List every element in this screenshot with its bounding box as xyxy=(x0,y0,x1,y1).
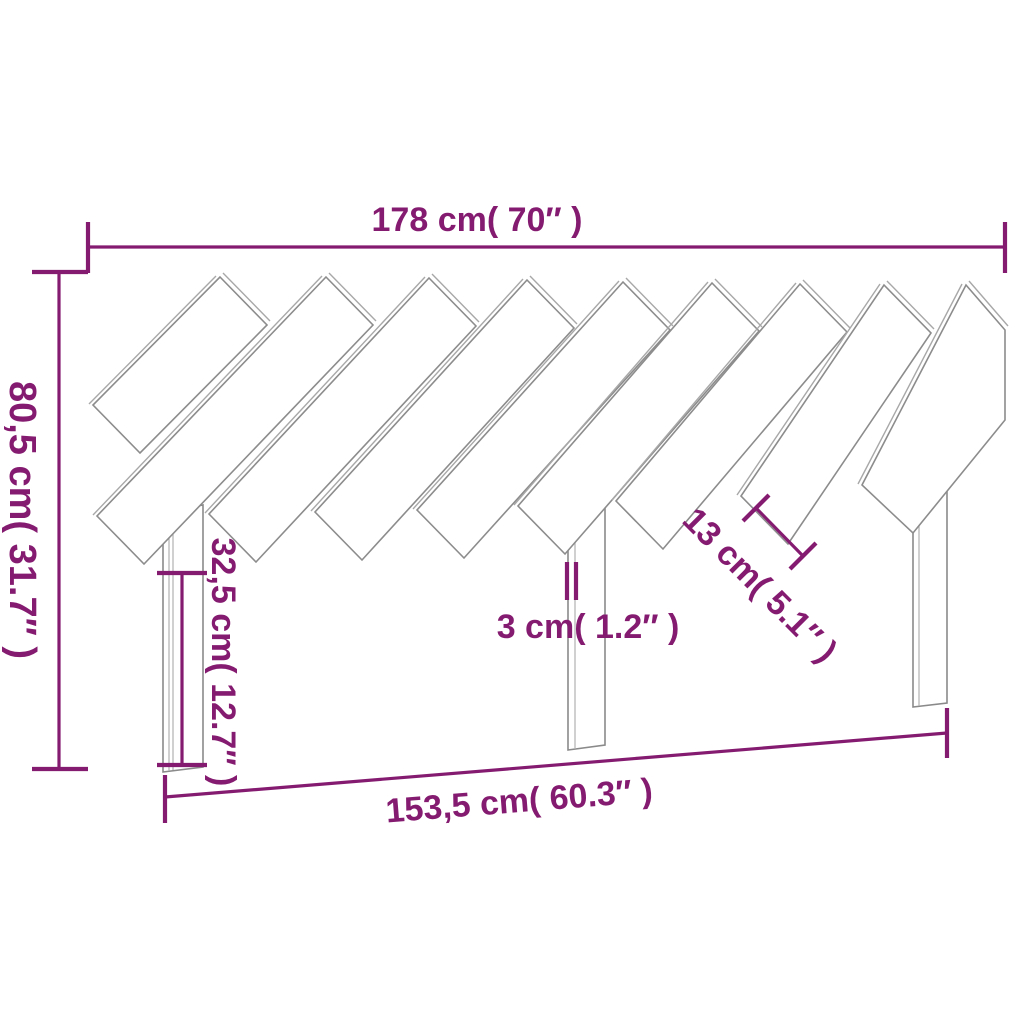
diagram-canvas: 178 cm( 70″ ) 80,5 cm( 31.7″ ) 32,5 cm( … xyxy=(0,0,1024,1024)
headboard-slats xyxy=(89,273,1008,564)
headboard-dimension-diagram: 178 cm( 70″ ) 80,5 cm( 31.7″ ) 32,5 cm( … xyxy=(0,0,1024,1024)
overall-height-label: 80,5 cm( 31.7″ ) xyxy=(1,381,43,659)
slat-width-label: 13 cm( 5.1″ ) xyxy=(675,501,844,670)
slat-thickness-label: 3 cm( 1.2″ ) xyxy=(497,608,680,646)
leg-height-label: 32,5 cm( 12.7″ ) xyxy=(204,538,242,787)
inner-width-label: 153,5 cm( 60.3″ ) xyxy=(384,772,654,831)
overall-width-label: 178 cm( 70″ ) xyxy=(372,201,583,239)
